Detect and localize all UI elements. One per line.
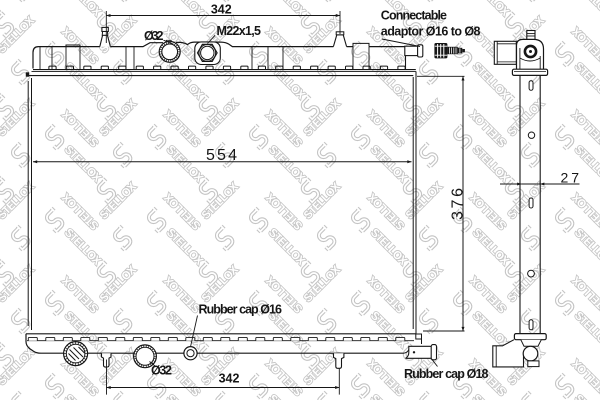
svg-text:376: 376: [449, 188, 466, 220]
svg-text:342: 342: [219, 372, 240, 386]
svg-text:M22x1,5: M22x1,5: [217, 24, 262, 38]
svg-text:Connectable: Connectable: [381, 9, 447, 23]
svg-text:Rubber cap Ø16: Rubber cap Ø16: [199, 303, 283, 317]
svg-text:Ø32: Ø32: [144, 29, 164, 43]
svg-text:Rubber cap Ø18: Rubber cap Ø18: [404, 367, 489, 381]
svg-text:554: 554: [206, 147, 237, 164]
svg-text:342: 342: [211, 3, 232, 17]
svg-text:adaptor Ø16 to Ø8: adaptor Ø16 to Ø8: [381, 25, 481, 39]
